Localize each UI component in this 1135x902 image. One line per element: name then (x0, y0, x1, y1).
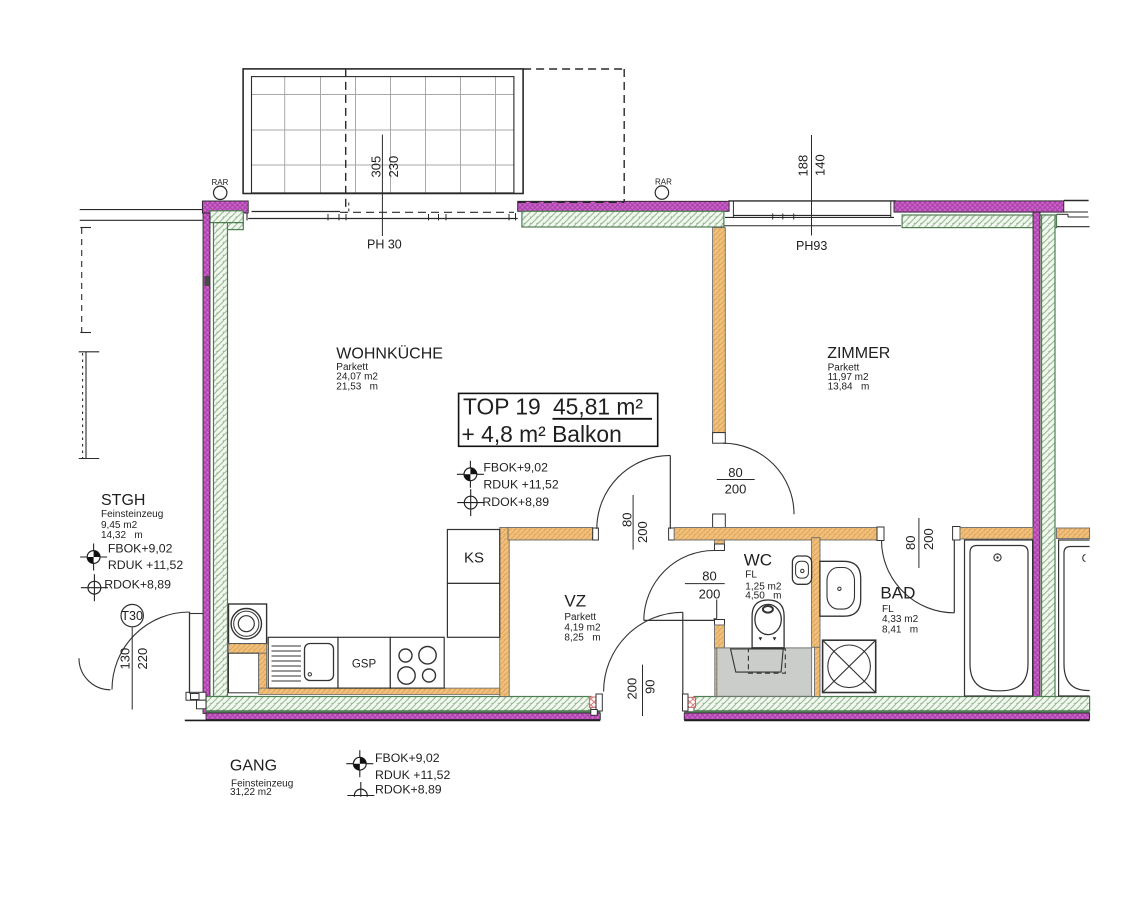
svg-text:200: 200 (635, 521, 650, 543)
svg-text:230: 230 (386, 156, 401, 178)
svg-text:21,53 m: 21,53 m (336, 381, 378, 392)
svg-text:T30: T30 (121, 609, 143, 623)
svg-text:130: 130 (118, 648, 133, 670)
svg-text:ZIMMER: ZIMMER (827, 345, 890, 362)
svg-text:4,33 m2: 4,33 m2 (882, 614, 919, 625)
svg-text:80: 80 (728, 465, 742, 480)
svg-text:200: 200 (699, 587, 721, 602)
svg-text:4,50 m: 4,50 m (745, 591, 781, 602)
svg-text:200: 200 (625, 678, 640, 700)
svg-text:RDUK +11,52: RDUK +11,52 (483, 478, 558, 492)
svg-text:RDOK+8,89: RDOK+8,89 (482, 495, 549, 509)
svg-text:STGH: STGH (101, 492, 145, 509)
svg-text:305: 305 (369, 156, 384, 178)
svg-text:WC: WC (744, 551, 772, 570)
svg-text:RDOK+8,89: RDOK+8,89 (104, 578, 171, 592)
svg-text:8,25 m: 8,25 m (564, 633, 600, 644)
svg-text:80: 80 (620, 513, 635, 527)
svg-text:RDUK +11,52: RDUK +11,52 (375, 768, 450, 782)
svg-text:80: 80 (702, 569, 716, 584)
svg-text:RAR: RAR (655, 178, 672, 187)
svg-text:FBOK+9,02: FBOK+9,02 (483, 461, 548, 475)
svg-text:45,81 m²: 45,81 m² (553, 394, 643, 420)
svg-text:8,41 m: 8,41 m (882, 625, 918, 636)
svg-text:WOHNKÜCHE: WOHNKÜCHE (336, 344, 443, 362)
svg-text:VZ: VZ (564, 592, 586, 611)
svg-text:RDUK +11,52: RDUK +11,52 (108, 558, 183, 572)
svg-text:31,22 m2: 31,22 m2 (230, 787, 272, 798)
svg-text:200: 200 (921, 528, 936, 550)
svg-text:GANG: GANG (230, 758, 277, 775)
svg-text:PH93: PH93 (796, 239, 827, 253)
svg-text:FBOK+9,02: FBOK+9,02 (375, 751, 440, 765)
svg-text:14,32 m: 14,32 m (101, 530, 143, 541)
svg-text:200: 200 (725, 482, 747, 497)
svg-text:13,84 m: 13,84 m (828, 381, 870, 392)
svg-text:80: 80 (903, 536, 918, 550)
svg-text:220: 220 (135, 648, 150, 670)
svg-text:GSP: GSP (352, 659, 377, 671)
svg-text:BAD: BAD (880, 584, 915, 603)
svg-text:188: 188 (796, 155, 811, 177)
svg-text:KS: KS (464, 550, 484, 567)
svg-text:Parkett: Parkett (564, 612, 596, 623)
svg-text:90: 90 (643, 680, 658, 694)
svg-text:+ 4,8 m² Balkon: + 4,8 m² Balkon (462, 421, 622, 447)
svg-text:TOP 19: TOP 19 (463, 394, 541, 420)
svg-text:PH 30: PH 30 (367, 238, 402, 252)
svg-text:FBOK+9,02: FBOK+9,02 (108, 542, 173, 556)
svg-text:Feinsteinzeug: Feinsteinzeug (101, 509, 163, 520)
svg-text:140: 140 (813, 154, 828, 176)
svg-text:FL: FL (745, 570, 757, 581)
